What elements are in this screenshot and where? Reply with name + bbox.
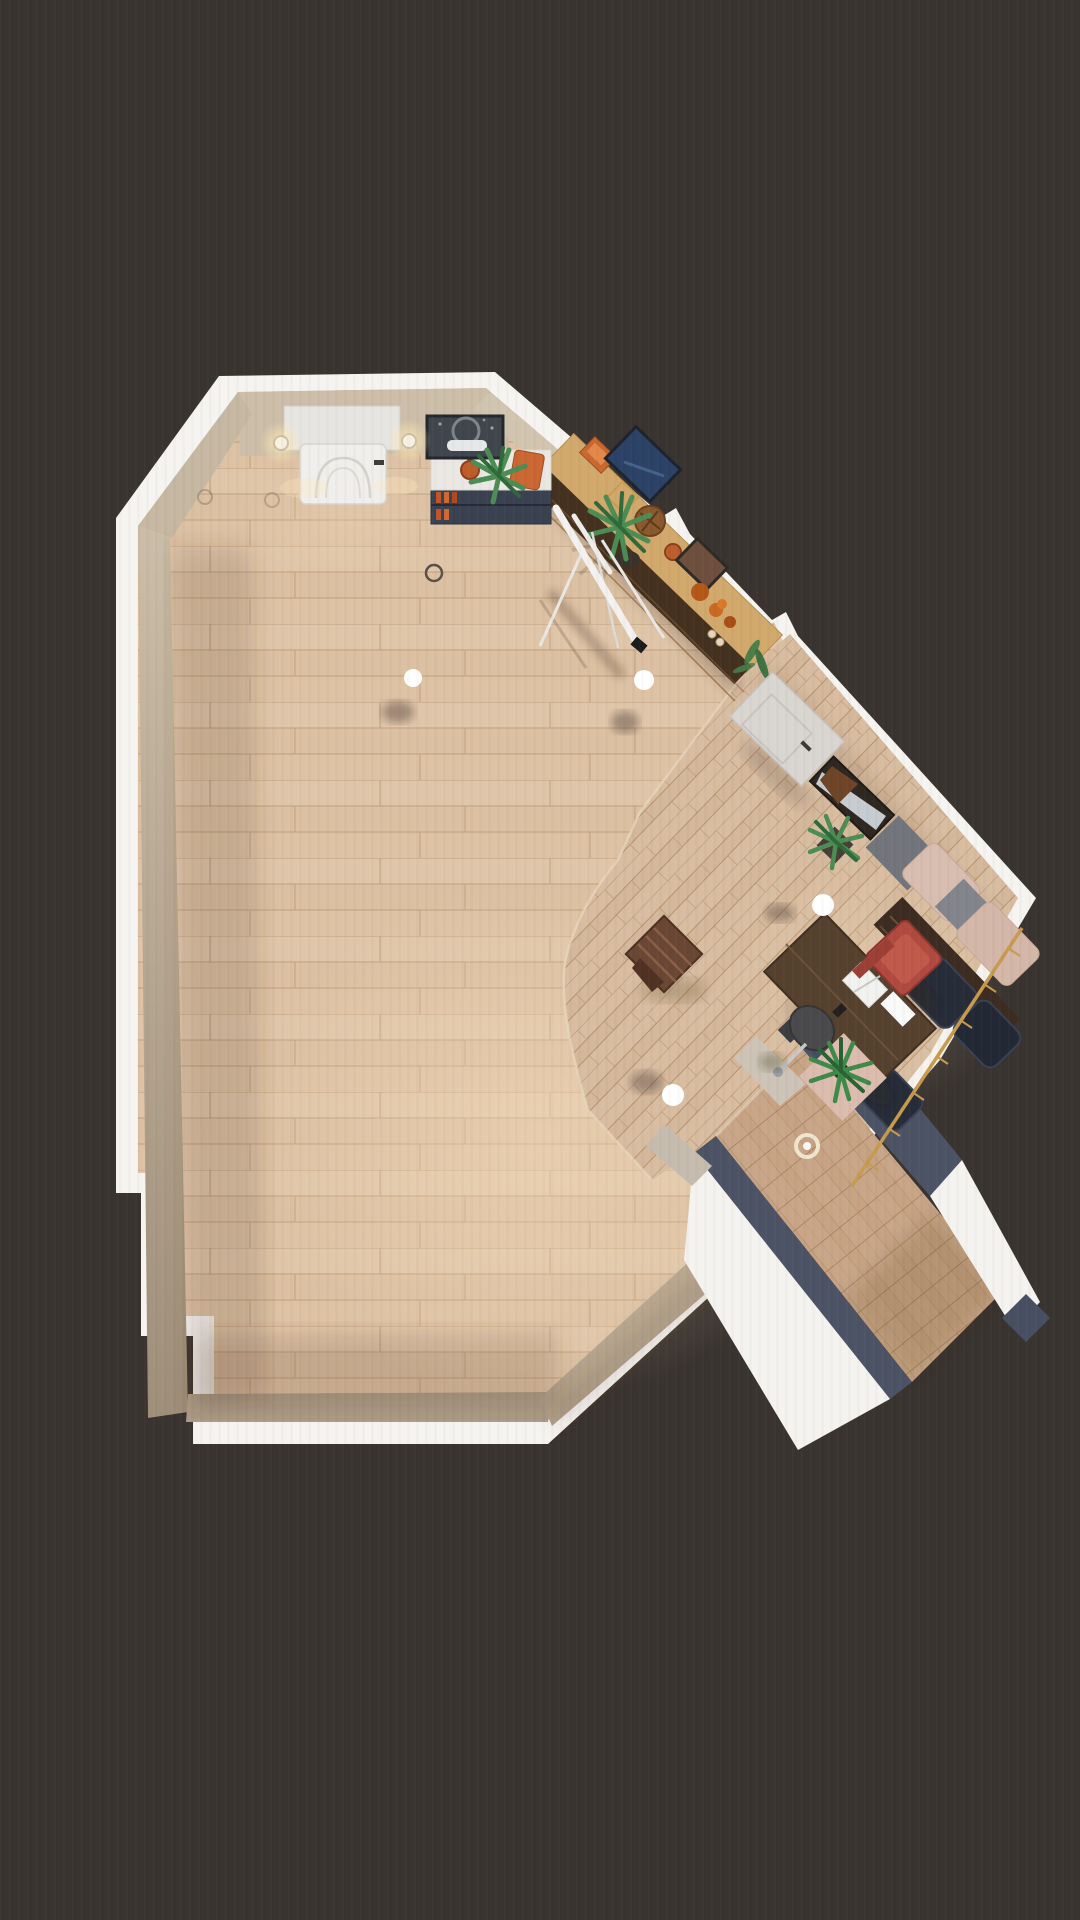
wall-art-boat [447, 440, 487, 451]
wall-art-frame [427, 416, 503, 458]
console-item-amber-vase-1 [691, 583, 709, 601]
console-item-amber-vase-3 [717, 599, 727, 609]
floorplan-canvas[interactable] [0, 0, 1080, 1920]
wall-art-speckle-3 [483, 419, 486, 422]
ceiling-light-4 [662, 1084, 684, 1106]
floor-shadow-left [172, 545, 266, 1406]
light-shadow-5 [759, 1053, 785, 1071]
sconce-right-fixture [402, 434, 416, 448]
dresser-books-5 [444, 509, 449, 520]
dresser-books-3 [452, 492, 457, 503]
ceiling-light-2 [634, 670, 654, 690]
wall-art-speckle-2 [490, 426, 493, 429]
console-item-candle-2 [716, 638, 724, 646]
door-handle [374, 460, 384, 465]
light-shadow-2 [611, 711, 639, 733]
console-item-candle-1 [708, 630, 716, 638]
floorplan-viewport [0, 0, 1080, 1920]
sconce-floor-glow-right [374, 477, 418, 495]
ceiling-light-3 [812, 894, 834, 916]
stair-light-center [803, 1142, 811, 1150]
console-item-amber-vase-4 [724, 616, 736, 628]
dresser-books-1 [436, 492, 441, 503]
light-shadow-3 [765, 904, 795, 922]
sconce-floor-glow-left [280, 478, 328, 498]
wall-art-speckle-1 [438, 422, 441, 425]
dresser-books-2 [444, 492, 449, 503]
dresser-books-4 [436, 509, 441, 520]
light-shadow-1 [382, 701, 414, 723]
light-shadow-4 [630, 1071, 662, 1093]
sconce-left-fixture [274, 436, 288, 450]
ceiling-light-1 [404, 669, 422, 687]
